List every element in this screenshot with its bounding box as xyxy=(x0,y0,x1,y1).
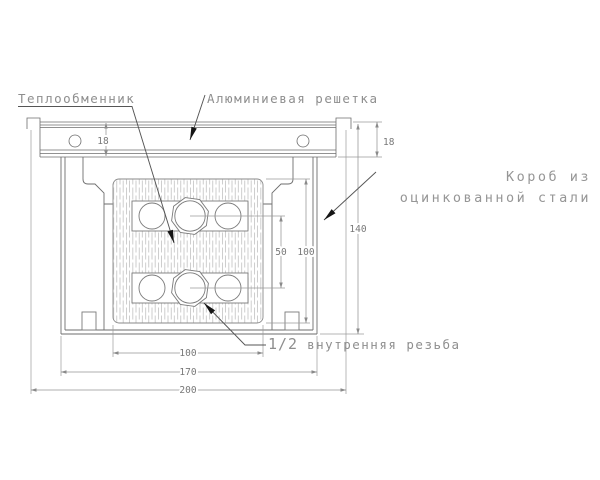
dim-text-170: 170 xyxy=(179,367,196,378)
dim-text-100-vertical: 100 xyxy=(297,247,314,258)
dim-text-200: 200 xyxy=(179,385,196,396)
box-material-label-line2: оцинкованной стали xyxy=(400,190,591,206)
drawing-canvas: 18 18 140 100 50 100 170 200 Теплообмен xyxy=(0,0,600,480)
dim-text-18-left: 18 xyxy=(97,136,109,147)
technical-drawing: 18 18 140 100 50 100 170 200 Теплообмен xyxy=(0,0,600,480)
dimension-grille-height-left: 18 xyxy=(97,123,109,156)
left-foot xyxy=(82,312,96,330)
dim-text-100-bottom: 100 xyxy=(179,348,196,359)
pipe-circle xyxy=(139,203,165,229)
heat-exchanger-core xyxy=(113,179,263,323)
grille-hole xyxy=(297,135,309,147)
dimension-core-height: 100 xyxy=(266,179,315,323)
dim-text-140: 140 xyxy=(349,224,366,235)
box-material-leader-arrow xyxy=(324,172,376,220)
right-foot xyxy=(285,312,299,330)
dim-text-18-right: 18 xyxy=(383,137,395,148)
dimension-overall-height: 140 xyxy=(320,124,367,334)
aluminum-grille xyxy=(27,118,351,157)
label-box-material: Короб из оцинкованной стали xyxy=(324,169,591,220)
dim-text-50: 50 xyxy=(275,247,287,258)
pipe-circle xyxy=(139,275,165,301)
grille-hole xyxy=(69,135,81,147)
aluminum-grille-leader-arrow xyxy=(190,95,205,140)
heat-exchanger-label: Теплообменник xyxy=(18,91,135,106)
aluminum-grille-label: Алюминиевая решетка xyxy=(207,91,379,106)
box-material-label-line1: Короб из xyxy=(506,169,591,185)
thread-label: 1/2 внутренняя резьба xyxy=(268,335,461,353)
dimension-grille-height-right: 18 xyxy=(338,122,395,157)
label-aluminum-grille: Алюминиевая решетка xyxy=(190,91,379,140)
